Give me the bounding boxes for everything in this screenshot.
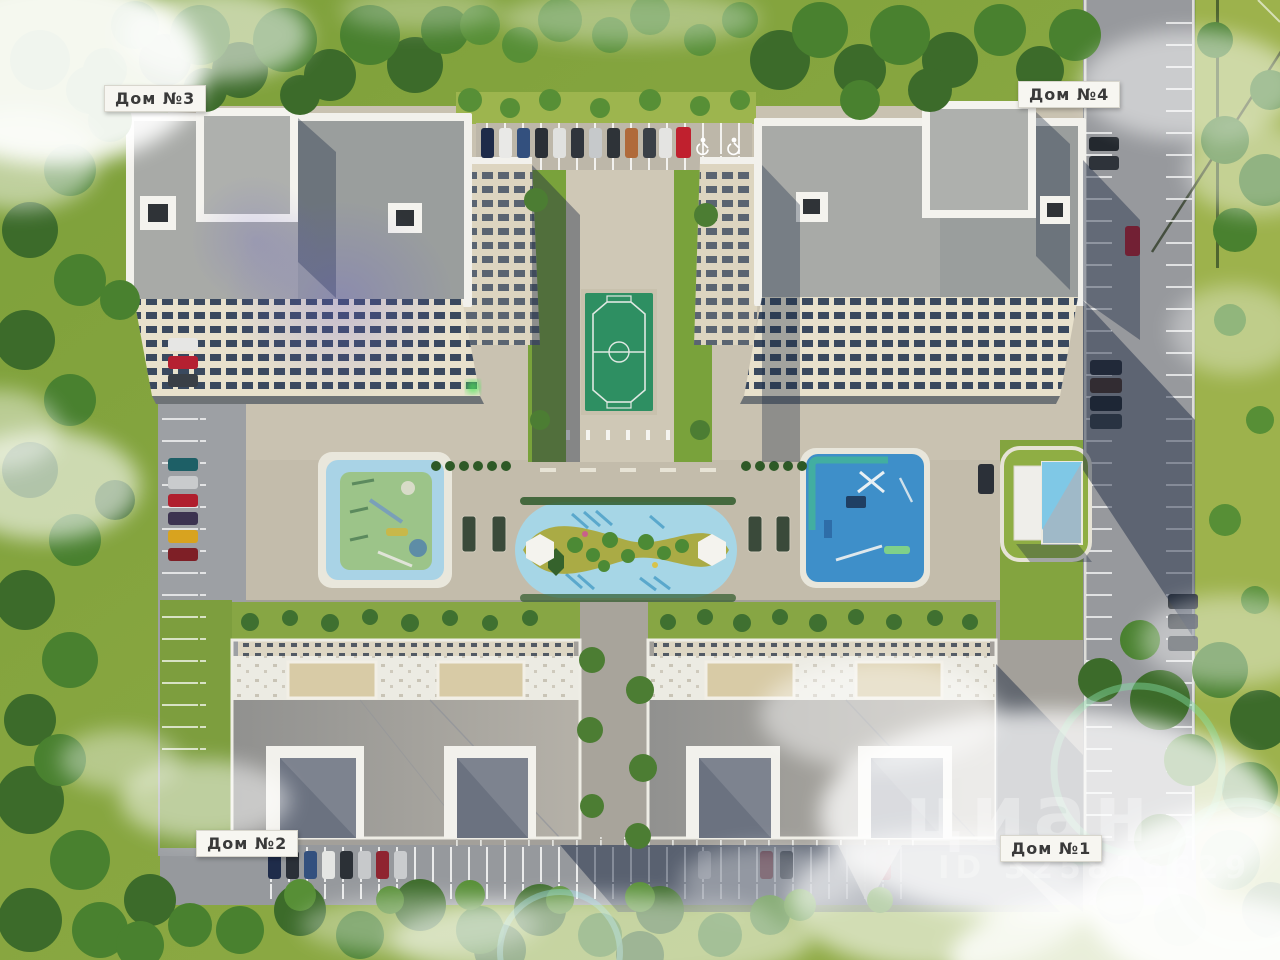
central-garden xyxy=(515,497,737,602)
substation-kiosk xyxy=(1002,448,1090,560)
site-plan-render: циан ID 325816629 Дом №3 Дом №4 Дом №2 Д… xyxy=(0,0,1280,960)
label-house-2: Дом №2 xyxy=(196,830,298,857)
label-house-4: Дом №4 xyxy=(1018,81,1120,108)
sports-field xyxy=(581,289,657,415)
label-house-1: Дом №1 xyxy=(1000,835,1102,862)
van xyxy=(978,464,994,494)
aerial-render-canvas xyxy=(0,0,1280,960)
playground-right xyxy=(800,448,930,588)
label-house-3: Дом №3 xyxy=(104,85,206,112)
playground-left xyxy=(318,452,452,588)
